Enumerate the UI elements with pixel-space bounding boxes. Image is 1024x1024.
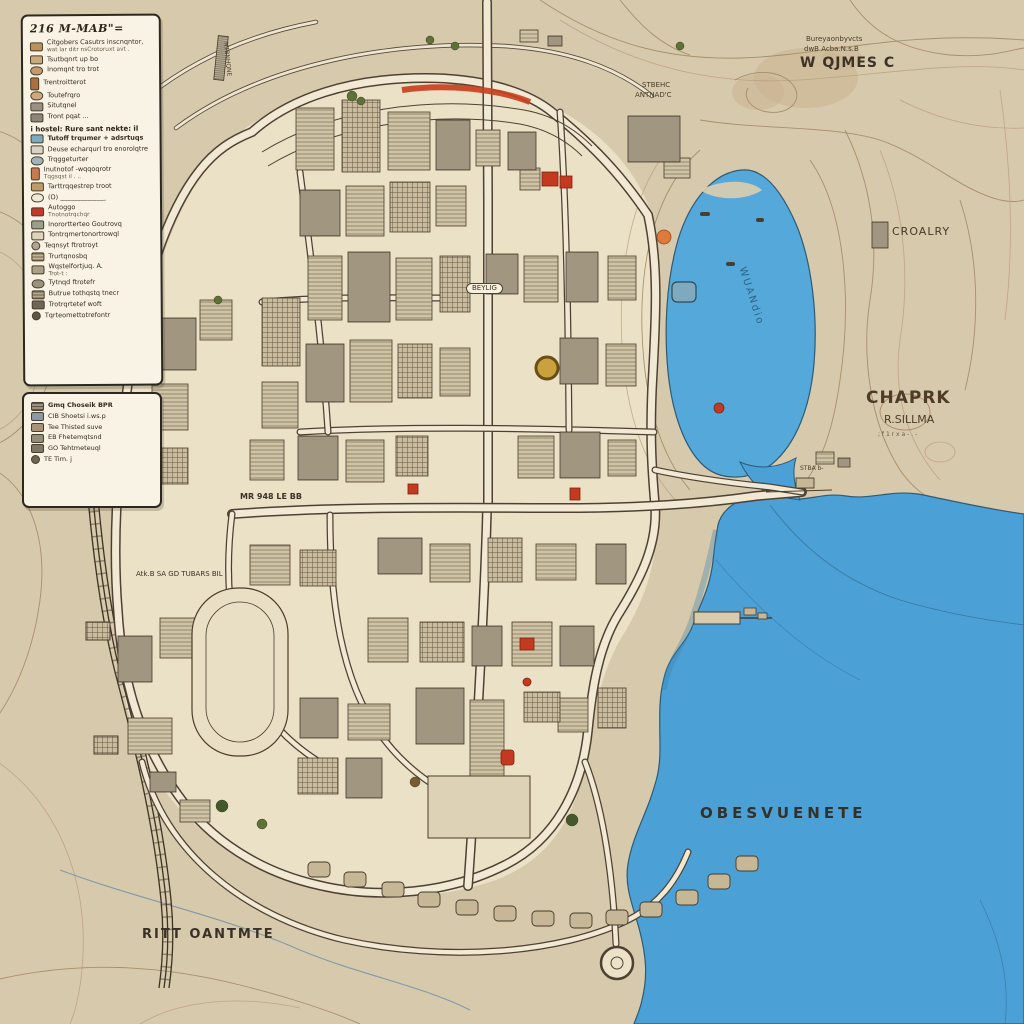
legend-item-label: Tqrteomettotrefontr	[45, 311, 110, 319]
legend-item: Trentroitterot	[30, 76, 152, 90]
legend-item: Tee Thisted suve	[31, 423, 153, 432]
stadium-track	[192, 588, 288, 756]
legend-swatch-icon	[32, 301, 45, 310]
legend-item-label: Trotrqrtetef woft	[49, 301, 102, 309]
teal-building	[672, 282, 696, 302]
legend-item: Inutnotof -wqqoqrotrTqgsqst il . ..	[31, 166, 153, 181]
city-map: BureyaonbyvctsdwB Acba.N.s.BW QJMES CCRO…	[0, 0, 1024, 1024]
legend-item-label: Deuse echarqurl tro enorolqtre	[48, 145, 148, 153]
legend-item-label: Inorortterteo Goutrovq	[48, 220, 122, 228]
legend-swatch-icon	[30, 42, 43, 51]
legend-swatch-icon	[32, 290, 45, 299]
legend-item-label: Tytnqd ftrotefr	[49, 279, 96, 287]
legend-item: Citgobers Casutrs inscnqntor,wat lar dit…	[30, 39, 152, 54]
legend-swatch-icon	[31, 266, 44, 275]
legend-item: Tsutbqnrt up bo	[30, 55, 152, 65]
legend-item-label: (O) ______________	[48, 194, 106, 202]
legend-item: Toutefrqro	[30, 91, 152, 101]
legend-swatch-icon	[31, 444, 44, 453]
legend-item-label: Situtqnel	[47, 103, 76, 111]
map-legend-secondary: Gmq Choseik BPRCIB Shoetsi i.ws.pTee Thi…	[22, 392, 162, 508]
legend-item-label: Gmq Choseik BPR	[48, 402, 113, 410]
legend-item: Deuse echarqurl tro enorolqtre	[31, 145, 153, 155]
legend-item-label: EB Fhetemqtsnd	[48, 434, 102, 442]
legend-item-label: Trqggeturter	[48, 156, 89, 164]
legend-item-label: Tront pqat ...	[47, 113, 88, 121]
legend-swatch-icon	[31, 167, 40, 180]
roundabout	[601, 947, 633, 979]
legend-rows: Citgobers Casutrs inscnqntor,wat lar dit…	[30, 39, 154, 321]
legend-item-label: CIB Shoetsi i.ws.p	[48, 413, 106, 421]
legend-item-label: Trentroitterot	[43, 79, 86, 87]
legend-item: Butrue tothqstq tnecr	[32, 289, 154, 299]
legend-item: TE Tim. j	[31, 455, 153, 464]
legend-swatch-icon	[31, 252, 44, 261]
legend-item: Teqnsyt ftrotroyt	[31, 241, 153, 251]
legend-item: Tqrteomettotrefontr	[32, 311, 154, 321]
legend-item-label: Toutefrqro	[47, 92, 80, 100]
legend-swatch-icon	[31, 135, 44, 144]
legend-item: Tutoff trqumer + adsrtuqs	[31, 134, 153, 144]
legend-item-label: Tontrqmertonortrowql	[48, 231, 119, 239]
legend-swatch-icon	[31, 220, 44, 229]
legend-item-sublabel: Tnotnotrqchqr	[48, 212, 89, 219]
legend-swatch-icon	[31, 242, 40, 251]
legend-item: Trqggeturter	[31, 155, 153, 165]
legend-title: 216 M-MAB"=	[30, 22, 152, 36]
legend-item: AutoggoTnotnotrqchqr	[31, 203, 153, 218]
legend-swatch-icon	[31, 434, 44, 443]
legend-swatch-icon	[32, 279, 45, 288]
legend-item-label: Tee Thisted suve	[48, 424, 102, 432]
legend-item-label: Trurtqnosbq	[48, 253, 87, 261]
legend-swatch-icon	[31, 412, 44, 421]
rail-station	[94, 736, 118, 754]
legend-swatch-icon	[30, 102, 43, 111]
legend-swatch-icon	[31, 156, 44, 165]
orange-poi-dot	[657, 230, 671, 244]
legend-swatch-icon	[31, 145, 44, 154]
legend-item: Situtqnel	[30, 101, 152, 111]
map-legend-primary: 216 M-MAB"= Citgobers Casutrs inscnqntor…	[21, 14, 164, 387]
legend-swatch-icon	[31, 423, 44, 432]
legend-swatch-icon	[30, 55, 43, 64]
legend-swatch-icon	[30, 66, 43, 75]
legend-item: Tarttrqqestrep troot	[31, 182, 153, 192]
legend-item-sublabel: wat lar ditr nsCrotoruxt avt .	[47, 46, 144, 53]
legend-item-label: Butrue tothqstq tnecr	[49, 290, 119, 298]
legend-item: CIB Shoetsi i.ws.p	[31, 412, 153, 421]
legend-item: Trotrqrtetef woft	[32, 300, 154, 310]
rail-station	[86, 622, 110, 640]
legend-item: Inomqnt tro trot	[30, 65, 152, 75]
legend-rows: Gmq Choseik BPRCIB Shoetsi i.ws.pTee Thi…	[31, 402, 153, 464]
legend-swatch-icon	[30, 77, 39, 90]
legend-swatch-icon	[30, 92, 43, 101]
legend-swatch-icon	[32, 311, 41, 320]
legend-item-label: Inomqnt tro trot	[47, 66, 99, 74]
legend-item: Trurtqnosbq	[31, 252, 153, 262]
legend-swatch-icon	[31, 455, 40, 464]
legend-swatch-icon	[31, 193, 44, 202]
gold-ring-landmark	[536, 357, 558, 379]
legend-swatch-icon	[31, 402, 44, 411]
legend-item: Tytnqd ftrotefr	[32, 278, 154, 288]
legend-item: (O) ______________	[31, 193, 153, 203]
legend-item-sublabel: Trot-t :	[48, 270, 102, 277]
legend-item: Inorortterteo Goutrovq	[31, 220, 153, 230]
legend-item-sublabel: Tqgsqst il . ..	[44, 174, 111, 181]
legend-item: Tontrqmertonortrowql	[31, 230, 153, 240]
legend-item: Wqstelfortjuq. A.Trot-t :	[31, 262, 153, 277]
legend-swatch-icon	[31, 231, 44, 240]
croalry-building-icon	[872, 222, 888, 248]
legend-item-label: Tarttrqqestrep troot	[48, 183, 112, 191]
legend-item-label: Tsutbqnrt up bo	[47, 56, 98, 64]
legend-item-label: TE Tim. j	[44, 456, 72, 464]
legend-item-label: Teqnsyt ftrotroyt	[44, 242, 98, 250]
legend-item: EB Fhetemqtsnd	[31, 434, 153, 443]
legend-item: Gmq Choseik BPR	[31, 402, 153, 411]
legend-item: GO Tehtmeteuql	[31, 444, 153, 453]
legend-swatch-icon	[30, 113, 43, 122]
legend-swatch-icon	[31, 183, 44, 192]
legend-item-label: GO Tehtmeteuql	[48, 445, 101, 453]
legend-item-label: Tutoff trqumer + adsrtuqs	[48, 134, 144, 142]
legend-item: Tront pqat ...	[30, 112, 152, 122]
legend-section-header: i hostel: Rure sant nekte: il	[30, 124, 152, 133]
legend-swatch-icon	[31, 207, 44, 216]
